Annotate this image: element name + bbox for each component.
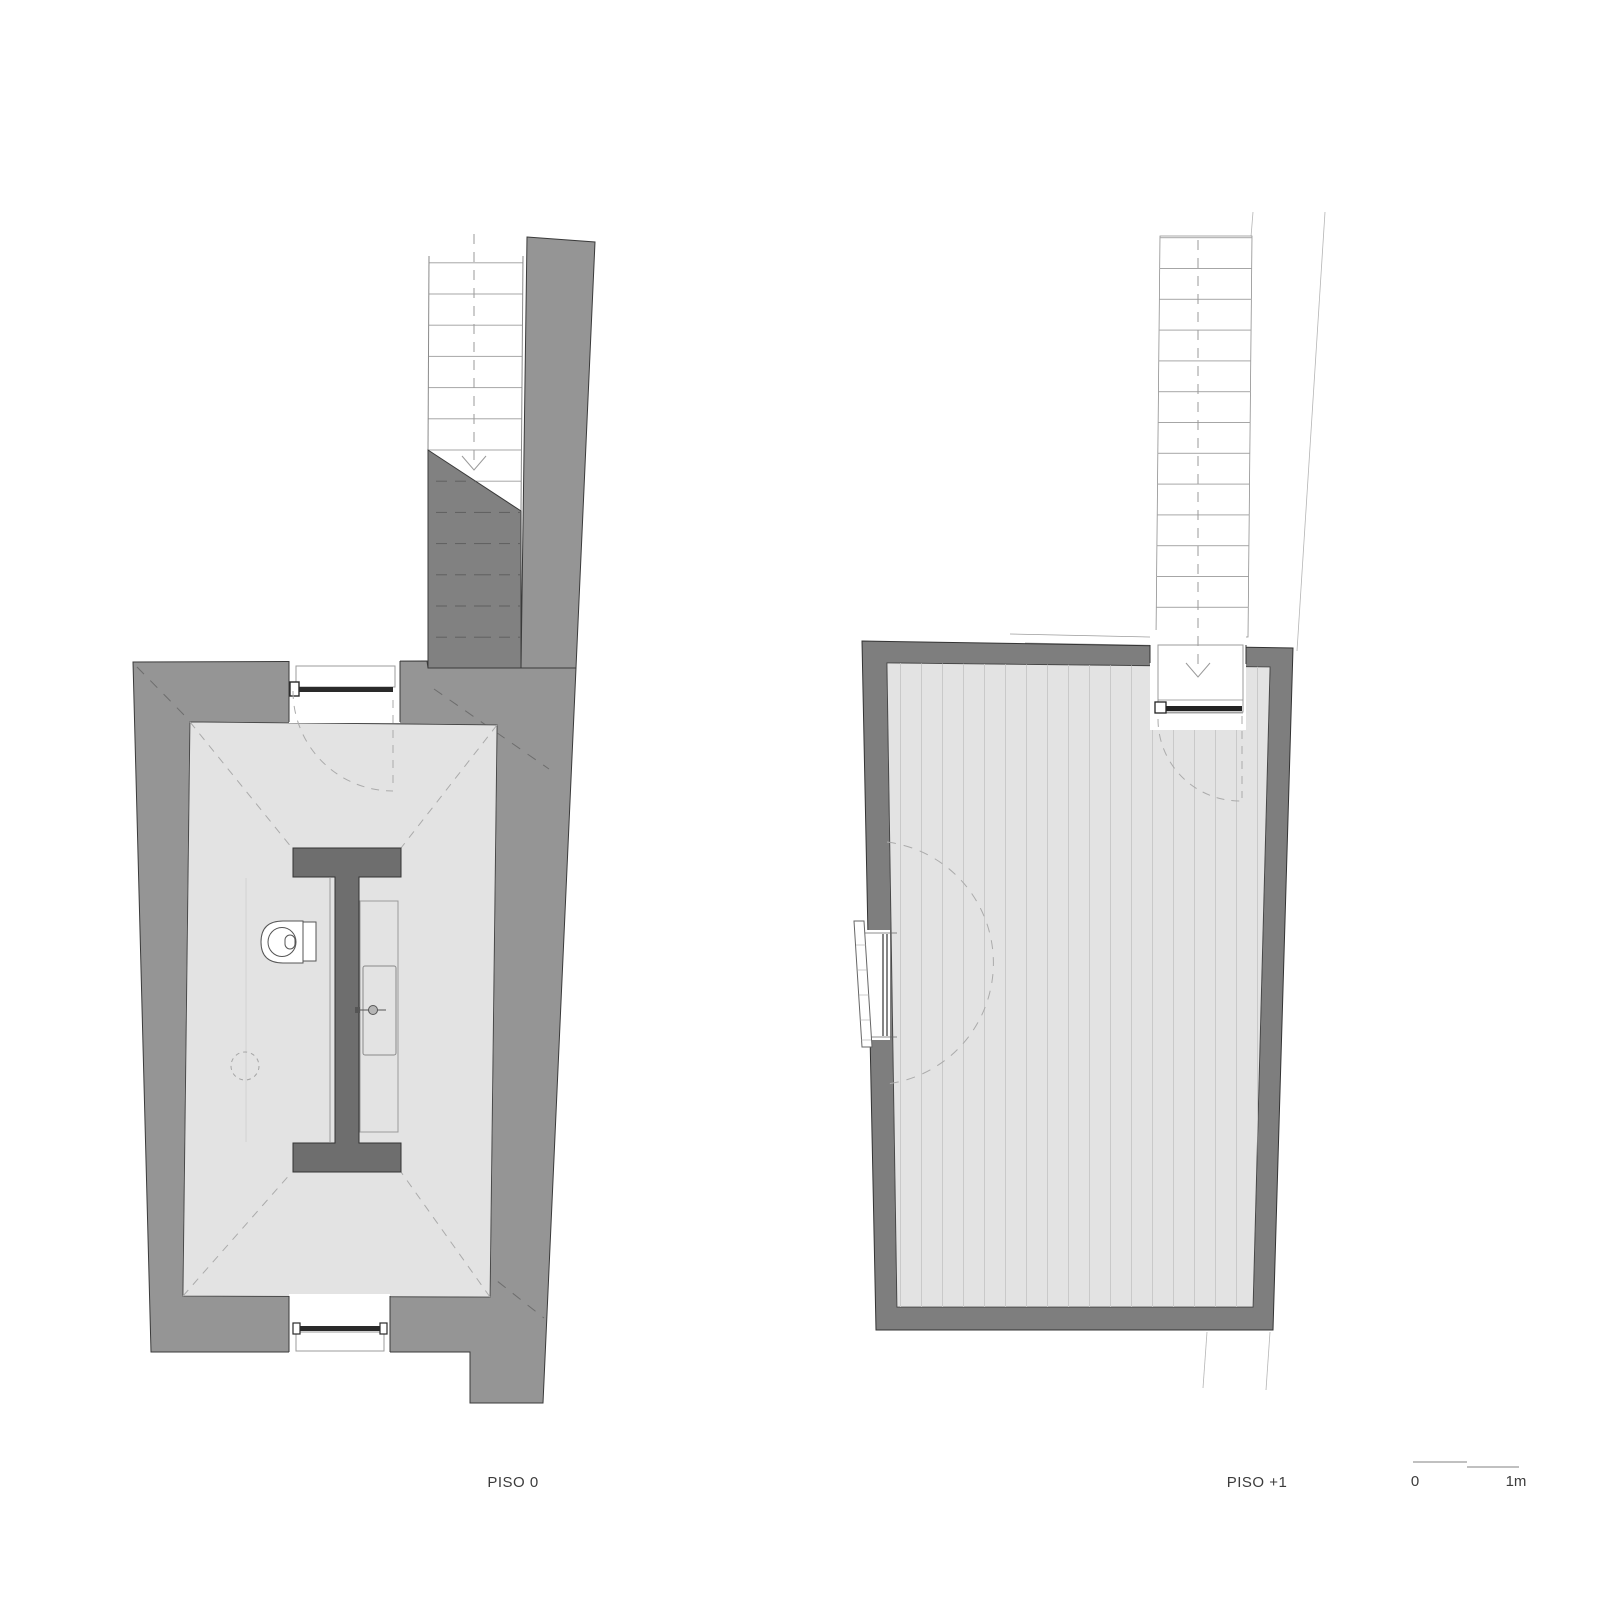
bottom-door-opening: [289, 1294, 390, 1356]
landing-box: [1158, 645, 1243, 712]
floor-plan-piso-plus-1: [854, 212, 1325, 1390]
door-jamb: [290, 682, 299, 696]
door-jamb: [293, 1323, 300, 1334]
plank-lines: [887, 663, 1270, 1307]
sliding-door-panel: [298, 687, 393, 692]
piso-0-label: PISO 0: [443, 1474, 583, 1491]
piso-plus-1-label: PISO +1: [1187, 1474, 1327, 1491]
landing-jamb: [1155, 702, 1166, 713]
staircase-piso-0: [428, 234, 595, 668]
sliding-door-panel: [297, 1326, 383, 1331]
scale-one-meter-label: 1m: [1492, 1473, 1540, 1490]
landing-threshold: [1165, 706, 1242, 711]
toilet-flush: [285, 935, 295, 949]
architectural-drawing: [0, 0, 1600, 1600]
stair-treads: [1156, 236, 1252, 637]
door-jamb: [380, 1323, 387, 1334]
faucet-tap: [369, 1006, 378, 1015]
staircase-piso-1: [1156, 236, 1252, 637]
drawing-canvas: PISO 0 PISO +1 0 1m: [0, 0, 1600, 1600]
scale-zero-label: 0: [1400, 1473, 1430, 1490]
floor-plan-piso-0: [133, 234, 595, 1403]
scale-bar: [1413, 1462, 1519, 1467]
faucet-base: [355, 1007, 360, 1013]
toilet-tank: [303, 922, 316, 961]
toilet: [261, 921, 316, 963]
stair-side-wall: [521, 237, 595, 668]
